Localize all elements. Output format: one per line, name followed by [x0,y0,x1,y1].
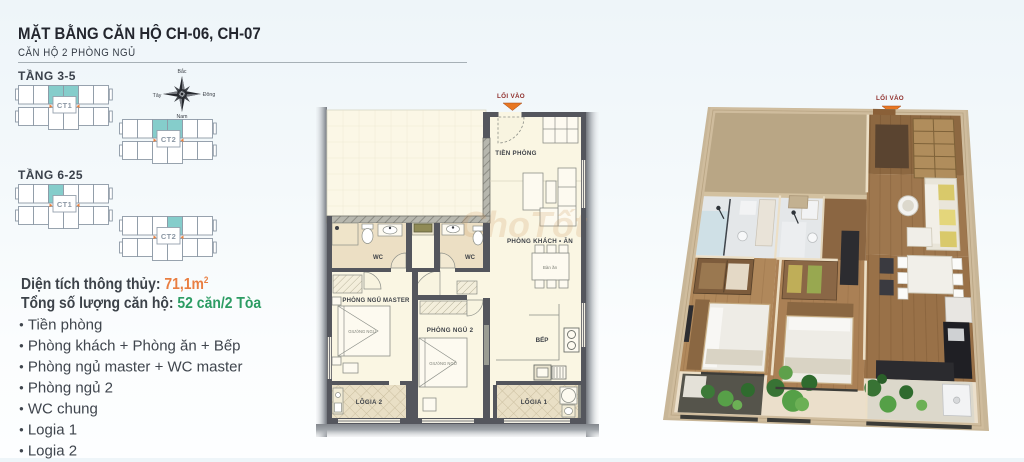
svg-text:LÔGIA 2: LÔGIA 2 [356,398,383,406]
svg-text:WC: WC [465,255,476,261]
svg-text:GIƯờNG NGỦ: GIƯờNG NGỦ [429,361,457,366]
svg-text:Bàn ăn: Bàn ăn [543,265,558,270]
svg-text:CT1: CT1 [57,101,72,110]
svg-text:LỐI VÀO: LỐI VÀO [497,90,525,100]
svg-text:PHÒNG NGỦ MASTER: PHÒNG NGỦ MASTER [342,296,410,304]
svg-text:Bắc: Bắc [178,68,187,75]
svg-text:LÔGIA 1: LÔGIA 1 [521,398,548,406]
svg-text:BẾP: BẾP [536,337,549,344]
svg-text:GIƯờNG NGỦ: GIƯờNG NGỦ [348,329,376,334]
svg-text:CT2: CT2 [161,232,176,241]
svg-text:Đông: Đông [203,92,216,98]
svg-text:CT1: CT1 [57,200,72,209]
svg-text:Tây: Tây [153,93,162,99]
svg-text:CT2: CT2 [161,135,176,144]
svg-text:WC: WC [373,255,384,261]
svg-text:LỐI VÀO: LỐI VÀO [876,92,904,102]
svg-text:TIỀN PHÒNG: TIỀN PHÒNG [495,149,537,157]
svg-text:PHÒNG NGỦ 2: PHÒNG NGỦ 2 [427,326,474,334]
